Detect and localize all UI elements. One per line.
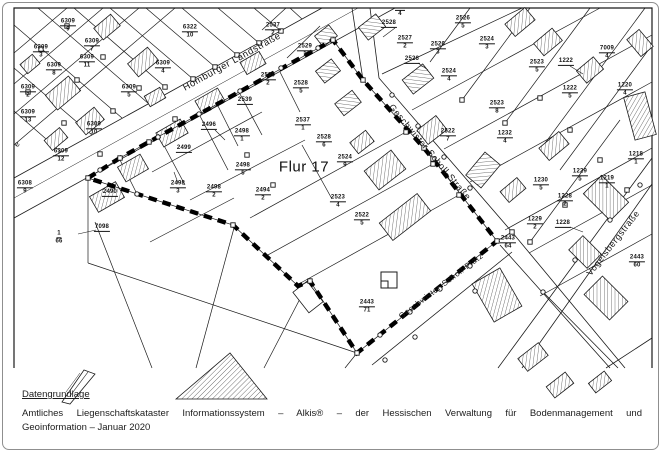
parcel-label: 63095 <box>121 84 137 99</box>
parcel-label: 630910 <box>86 121 102 136</box>
parcel-label: 12282 <box>557 193 573 208</box>
parcel-label: 2526 <box>404 56 420 64</box>
parcel-label: 1222 <box>558 58 574 66</box>
footer-line1: Amtliches Liegenschaftskataster Informat… <box>22 407 642 421</box>
parcel-label: 244364 <box>500 235 516 250</box>
parcel-label: 63093 <box>33 44 49 59</box>
parcel-label: 25249 <box>337 154 353 169</box>
parcel-label: 63089 <box>17 180 33 195</box>
parcel-label: 25234 <box>330 194 346 209</box>
parcel-label: 25225 <box>354 212 370 227</box>
parcel-label: 12292 <box>527 216 543 231</box>
parcel-label: 12295 <box>572 168 588 183</box>
parcel-label: 25285 <box>293 80 309 95</box>
parcel-label: 2490 <box>102 189 118 197</box>
parcel-label: 2528 <box>381 20 397 28</box>
parcel-label: 24981 <box>234 128 250 143</box>
flur-title: Flur 17 <box>279 159 329 176</box>
parcel-label: 25291 <box>297 43 313 58</box>
parcel-label: 630911 <box>79 54 95 69</box>
parcel-label: 63092 <box>20 84 36 99</box>
parcel-label: 1228 <box>555 220 571 228</box>
parcel-label: 25371 <box>295 117 311 132</box>
parcel-label: 25272 <box>397 35 413 50</box>
parcel-label: 63098 <box>46 62 62 77</box>
parcel-label: 25263 <box>430 41 446 56</box>
footer-line2: Geoinformation – Januar 2020 <box>22 421 642 435</box>
parcel-label: 12191 <box>599 175 615 190</box>
attribution-footer: Datengrundlage Amtliches Liegenschaftska… <box>22 388 642 434</box>
parcel-label: 25243 <box>479 36 495 51</box>
parcel-label: 12204 <box>617 82 633 97</box>
parcel-label: 244360 <box>629 254 645 269</box>
parcel-label: 7098 <box>94 224 110 232</box>
parcel-label: 244371 <box>359 299 375 314</box>
parcel-label: 12181 <box>628 151 644 166</box>
parcel-label: 4 <box>395 8 405 18</box>
parcel-label: 25244 <box>441 68 457 83</box>
parcel-label: 25227 <box>440 128 456 143</box>
cadastral-map-page: 6309963093630976309116309863094630926309… <box>0 0 661 452</box>
parcel-label: 24985 <box>235 162 251 177</box>
parcel-label: 2496 <box>201 122 217 130</box>
parcel-label: 70094 <box>599 45 615 60</box>
parcel-label: 12225 <box>562 85 578 100</box>
parcel-label: 24982 <box>206 184 222 199</box>
parcel-label: 63099 <box>60 18 76 33</box>
parcel-label: 630912 <box>53 148 69 163</box>
parcel-label: 25238 <box>489 100 505 115</box>
parcel-label: 63094 <box>155 60 171 75</box>
parcel-label: 632210 <box>182 24 198 39</box>
parcel-label: 12324 <box>497 130 513 145</box>
parcel-label: 12305 <box>533 177 549 192</box>
parcel-label: 25302 <box>260 72 276 87</box>
parcel-label: 2539 <box>237 97 253 105</box>
parcel-label: 24983 <box>170 180 186 195</box>
parcel-label: 63097 <box>84 38 100 53</box>
parcel-label: 25265 <box>455 15 471 30</box>
parcel-label: 166 <box>55 230 62 245</box>
parcel-label: 25286 <box>316 134 332 149</box>
parcel-label: 630913 <box>20 109 36 124</box>
utility-box-symbol <box>381 272 397 288</box>
footer-heading: Datengrundlage <box>22 388 642 401</box>
parcel-label: 2499 <box>176 145 192 153</box>
parcel-label: 25235 <box>529 59 545 74</box>
parcel-label: 24942 <box>255 187 271 202</box>
